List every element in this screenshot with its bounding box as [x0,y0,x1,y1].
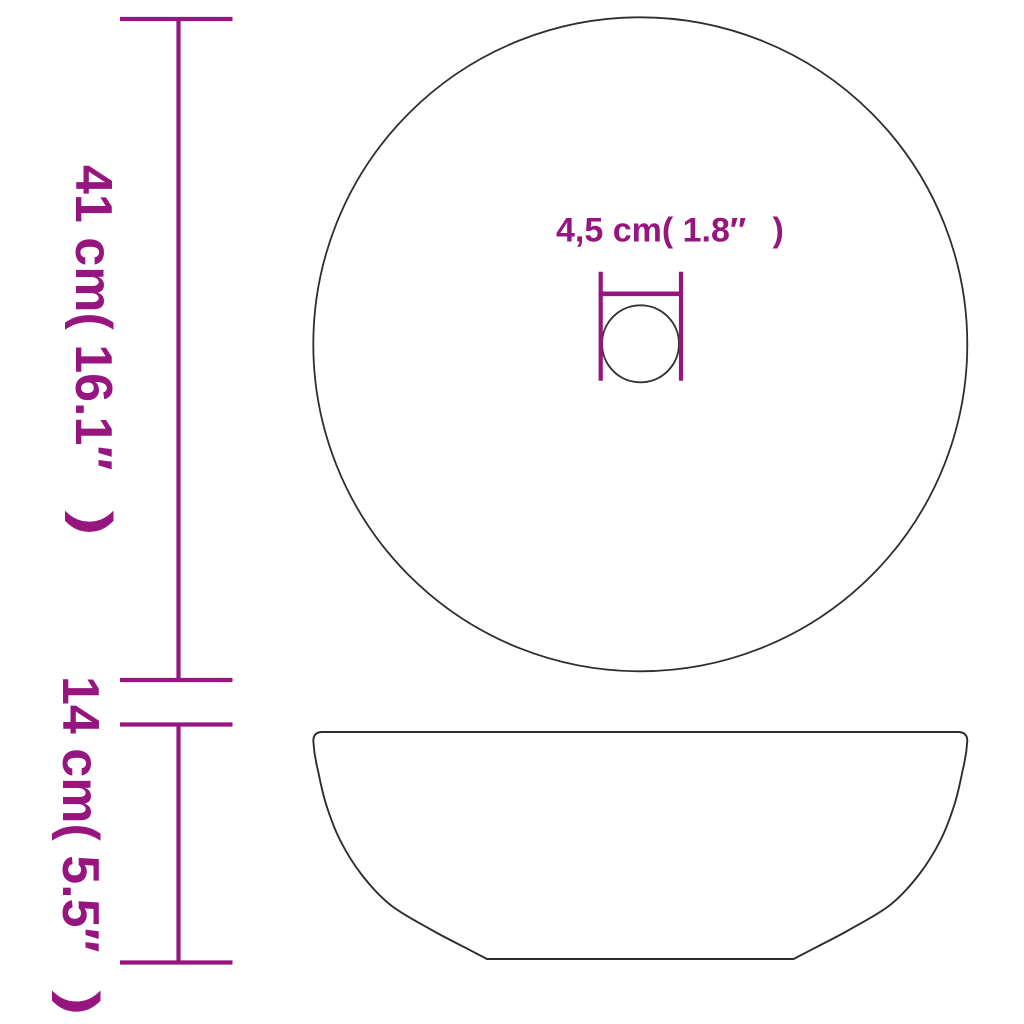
svg-text:14 cm( 5.5″: 14 cm( 5.5″ [51,676,109,952]
svg-text:): ) [52,990,111,1015]
svg-text:): ) [773,212,784,250]
svg-text:): ) [65,511,124,536]
svg-text:4,5 cm( 1.8″: 4,5 cm( 1.8″ [556,212,746,250]
svg-text:41 cm( 16.1″: 41 cm( 16.1″ [64,165,122,470]
